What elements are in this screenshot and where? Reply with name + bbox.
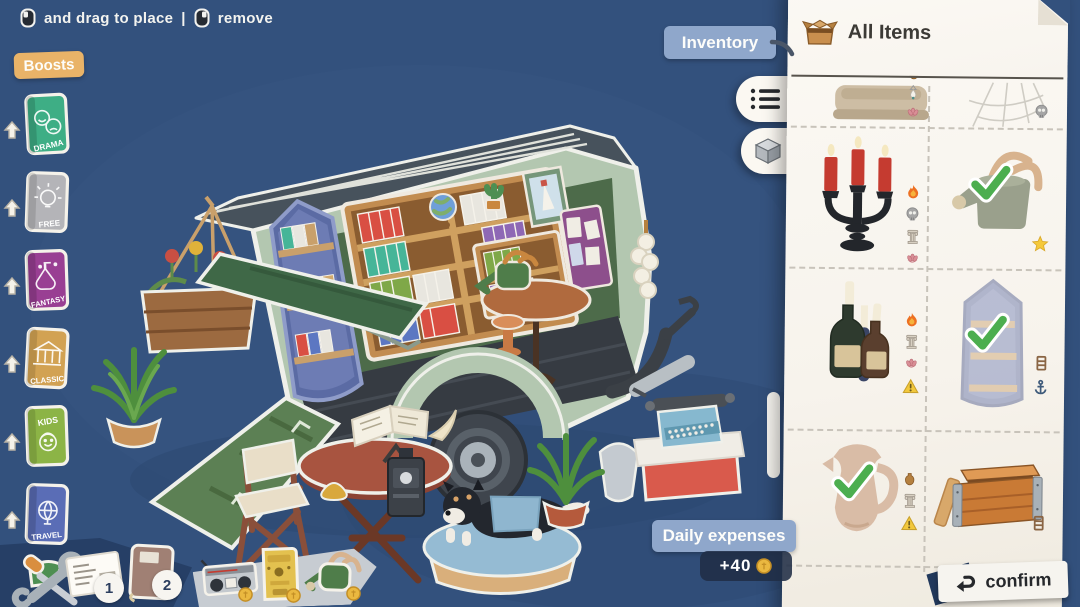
column-icon [903, 334, 919, 350]
boost-book-fantasy[interactable]: FANTASY [6, 244, 72, 316]
inventory-label: Inventory [664, 26, 776, 59]
flame-icon [903, 312, 919, 328]
potion-flask-icon: FANTASY [18, 244, 74, 316]
inventory-scrollbar[interactable] [767, 392, 780, 478]
star-icon [1032, 235, 1049, 252]
right-click-mouse-icon [194, 8, 210, 28]
column-icon [904, 229, 920, 245]
inventory-pointer-icon [770, 38, 796, 58]
confirm-button[interactable]: confirm [937, 561, 1068, 603]
shelf-icon [1033, 355, 1049, 371]
price-coin-icon [286, 588, 301, 607]
globe-icon: TRAVEL [18, 478, 74, 550]
shop-watering-can[interactable] [304, 548, 364, 603]
skull-icon [1033, 103, 1050, 120]
journal-button[interactable]: 2 [122, 541, 180, 607]
shelf-icon [1031, 515, 1047, 531]
lotus-icon [903, 356, 919, 372]
lotus-icon [905, 105, 921, 121]
flame-icon [905, 184, 921, 200]
column-icon [901, 493, 917, 509]
boost-book-classic[interactable]: CLASSIC [6, 322, 72, 394]
boost-book-free[interactable]: FREE [6, 166, 72, 238]
temple-icon: CLASSIC [18, 322, 74, 394]
drag-hint-label: and drag to place [44, 10, 173, 27]
cube-3d-view-icon [753, 136, 783, 166]
drama-masks-icon: DRAMA [18, 88, 74, 160]
equipped-check-icon [966, 158, 1015, 207]
panel-title: All Items [848, 21, 932, 45]
boost-book-kids[interactable]: KIDS [6, 400, 72, 472]
letters-button[interactable]: 1 [62, 545, 126, 604]
list-view-icon [748, 86, 782, 112]
return-arrow-icon [954, 573, 979, 592]
journal-count-badge: 2 [152, 570, 182, 600]
item-wooden-crate-badges [1031, 515, 1047, 531]
warning-icon [902, 378, 919, 395]
light-bulb-icon: FREE [18, 166, 74, 238]
equipped-check-icon [962, 308, 1011, 357]
daily-expenses-amount: +40 [700, 551, 792, 581]
price-coin-icon [346, 586, 361, 606]
item-bottle-candles-badges [902, 312, 920, 395]
daily-expenses-label: Daily expenses [652, 520, 796, 552]
confirm-label: confirm [985, 569, 1052, 592]
item-pitcher-badges [901, 472, 919, 532]
placement-hint: and drag to place | remove [20, 8, 273, 28]
left-click-mouse-icon [20, 8, 36, 28]
skull-icon [904, 206, 921, 223]
boosts-label: Boosts [14, 51, 85, 79]
coin-icon [756, 558, 772, 574]
child-face-icon: KIDS [18, 400, 74, 472]
anchor-icon [1032, 379, 1049, 396]
item-bottle-candles[interactable] [816, 275, 905, 396]
item-watering-can-badges [1032, 235, 1049, 252]
letters-count-badge: 1 [94, 573, 124, 603]
shop-coffee-machine[interactable] [256, 544, 302, 607]
item-boat-shelf-badges [1032, 355, 1049, 396]
inventory-panel: All Items [782, 0, 1069, 607]
coffee-grinder[interactable] [388, 448, 424, 516]
item-spiderweb-badges [1033, 103, 1050, 120]
hint-separator: | [181, 10, 186, 27]
item-candelabra[interactable] [814, 135, 903, 254]
vase-icon [902, 472, 917, 487]
pendant-lamp-icon [905, 85, 921, 101]
equipped-check-icon [829, 457, 878, 506]
remove-hint-label: remove [218, 10, 273, 27]
boost-book-drama[interactable]: DRAMA [6, 88, 72, 160]
item-candelabra-badges [903, 184, 921, 267]
shop-radio[interactable] [200, 555, 260, 604]
list-view-toggle[interactable] [736, 76, 794, 122]
inventory-panel-header: All Items [787, 0, 1068, 77]
boost-books-sidebar: DRAMA FREE [6, 88, 72, 550]
warning-icon [901, 515, 918, 532]
lotus-icon [904, 251, 920, 267]
open-box-icon [802, 17, 838, 47]
grid-column-divider [923, 86, 930, 572]
price-coin-icon [238, 587, 253, 607]
game-screen: and drag to place | remove Boosts DRAMA [0, 0, 1080, 607]
boost-book-travel[interactable]: TRAVEL [6, 478, 72, 550]
item-wooden-crate[interactable] [939, 440, 1046, 537]
